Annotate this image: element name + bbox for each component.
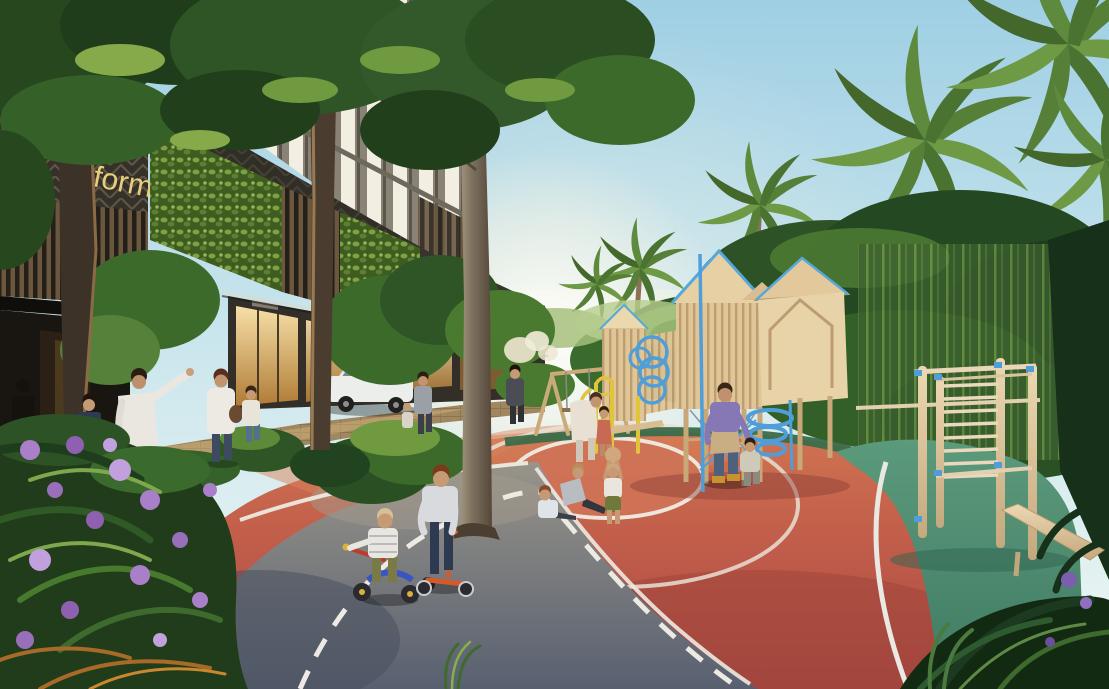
head <box>246 390 256 400</box>
scooter-wheel <box>417 581 431 595</box>
head <box>378 514 393 529</box>
head <box>608 468 619 479</box>
head <box>215 375 228 388</box>
leg <box>744 470 751 486</box>
canopy-lit <box>505 78 575 102</box>
leg <box>753 470 760 484</box>
person-shadow <box>206 460 238 468</box>
leg <box>615 510 620 524</box>
leg <box>607 510 612 524</box>
leg <box>510 404 516 424</box>
toddler-torso <box>402 412 413 428</box>
clamp <box>934 374 942 380</box>
leg <box>254 424 260 440</box>
head <box>433 471 449 487</box>
shop-window <box>236 306 298 406</box>
wheel-hub <box>359 589 365 595</box>
timber-post <box>918 366 927 538</box>
arm <box>452 500 455 532</box>
blossom-tree-white <box>538 345 558 361</box>
leg <box>600 444 605 456</box>
flower <box>172 532 188 548</box>
boot <box>712 476 725 483</box>
head <box>510 369 520 379</box>
scene-svg: ES le P form <box>0 0 1109 689</box>
canopy <box>360 90 500 170</box>
clamp <box>934 470 942 476</box>
flower <box>192 592 208 608</box>
flower <box>1080 597 1092 609</box>
flower <box>1061 572 1077 588</box>
canopy-lit <box>360 46 440 74</box>
flower <box>109 459 131 481</box>
flower <box>29 549 51 571</box>
head <box>132 375 146 389</box>
flower <box>153 633 167 647</box>
olive-pants <box>605 496 621 512</box>
leg <box>430 520 439 574</box>
slide-pole <box>790 400 792 470</box>
leg <box>388 556 397 582</box>
leg <box>426 412 432 432</box>
leg <box>418 412 424 434</box>
leg <box>588 438 595 460</box>
leg <box>576 440 583 462</box>
toddler-head <box>403 403 411 411</box>
flower <box>66 436 84 454</box>
flower <box>130 565 150 585</box>
canopy-lit <box>262 77 338 103</box>
leg <box>518 404 524 422</box>
timber-post <box>936 376 944 528</box>
head <box>591 397 602 408</box>
coral-dress <box>596 420 612 444</box>
flower <box>86 511 104 529</box>
flower <box>140 490 160 510</box>
rendering-canvas: ES le P form <box>0 0 1109 689</box>
hand <box>186 368 194 376</box>
canopy-lit <box>170 130 230 150</box>
torso <box>538 500 558 518</box>
car-hub <box>343 401 349 407</box>
head <box>540 490 551 501</box>
wheel-hub <box>407 591 413 597</box>
flower <box>103 438 117 452</box>
scooter-wheel <box>459 582 473 596</box>
flower <box>16 631 34 649</box>
timber-post <box>1028 364 1037 560</box>
canopy-lit <box>75 44 165 76</box>
ball <box>605 447 621 463</box>
head <box>573 468 584 479</box>
boot <box>727 474 740 481</box>
clamp <box>914 370 922 376</box>
torso-white-tee <box>604 478 622 498</box>
clamp <box>914 516 922 522</box>
leg <box>246 424 252 442</box>
flower <box>61 601 79 619</box>
timber-post <box>996 358 1005 548</box>
clamp <box>994 362 1002 368</box>
head <box>600 410 609 419</box>
leg <box>212 432 220 462</box>
torso <box>506 378 524 406</box>
head <box>83 399 95 411</box>
head <box>745 442 755 452</box>
leg <box>224 432 232 460</box>
canopy <box>545 55 695 145</box>
torso-grey <box>414 386 432 414</box>
flower <box>1045 637 1055 647</box>
torso <box>242 400 260 426</box>
shrub <box>445 290 555 370</box>
flower <box>203 483 217 497</box>
flower <box>47 482 63 498</box>
flower <box>20 440 40 460</box>
bench-leg <box>1016 552 1018 576</box>
shoulder-bag <box>229 405 243 423</box>
car-hub <box>393 402 399 408</box>
head <box>418 376 428 386</box>
head <box>718 388 732 402</box>
clamp <box>1026 366 1034 372</box>
clamp <box>994 462 1002 468</box>
leg <box>372 556 381 582</box>
